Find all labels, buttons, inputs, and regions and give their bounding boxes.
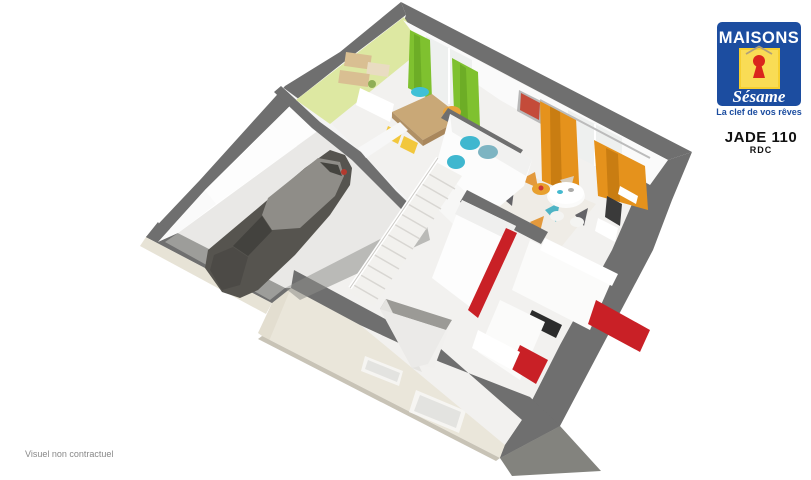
svg-text:Sésame: Sésame xyxy=(733,87,786,106)
svg-text:MAISONS: MAISONS xyxy=(719,29,800,47)
svg-text:JADE 110: JADE 110 xyxy=(725,129,797,146)
svg-text:La clef de vos rêves: La clef de vos rêves xyxy=(716,107,802,117)
svg-text:Visuel non contractuel: Visuel non contractuel xyxy=(25,449,113,459)
svg-text:RDC: RDC xyxy=(750,145,773,155)
